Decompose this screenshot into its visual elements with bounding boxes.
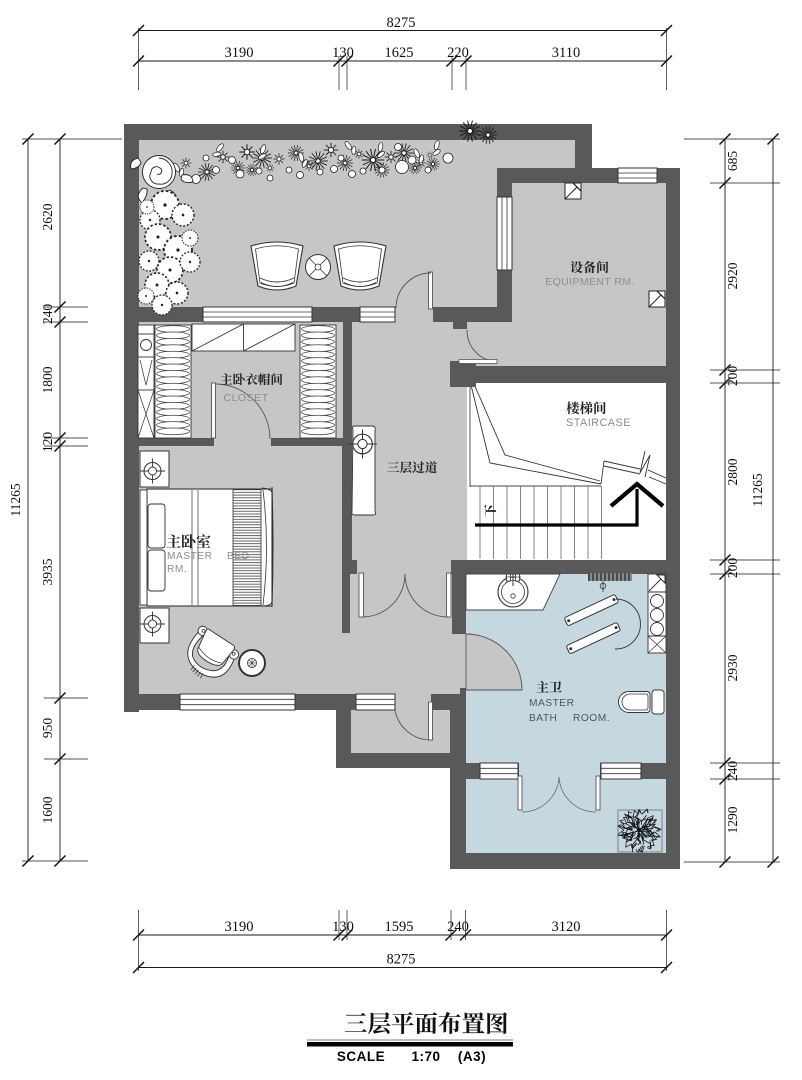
svg-text:240: 240 bbox=[447, 919, 469, 935]
svg-text:3120: 3120 bbox=[552, 919, 581, 935]
svg-text:240: 240 bbox=[40, 304, 55, 325]
svg-text:200: 200 bbox=[725, 366, 740, 387]
svg-text:950: 950 bbox=[40, 718, 55, 739]
svg-text:1800: 1800 bbox=[40, 366, 55, 393]
svg-text:1625: 1625 bbox=[385, 45, 414, 61]
svg-text:STAIRCASE: STAIRCASE bbox=[566, 417, 631, 429]
svg-text:200: 200 bbox=[725, 558, 740, 579]
svg-text:3935: 3935 bbox=[40, 558, 55, 585]
svg-text:240: 240 bbox=[725, 761, 740, 782]
svg-text:RM.: RM. bbox=[167, 564, 187, 575]
svg-text:CLOSET: CLOSET bbox=[223, 392, 268, 404]
svg-text:130: 130 bbox=[332, 919, 354, 935]
svg-text:2620: 2620 bbox=[40, 203, 55, 230]
svg-text:1:70: 1:70 bbox=[411, 1049, 440, 1064]
svg-text:120: 120 bbox=[40, 432, 55, 453]
svg-text:SCALE: SCALE bbox=[337, 1049, 385, 1064]
svg-text:3190: 3190 bbox=[225, 919, 254, 935]
svg-text:2930: 2930 bbox=[725, 654, 740, 681]
svg-text:2920: 2920 bbox=[725, 262, 740, 289]
svg-text:BATH: BATH bbox=[529, 713, 557, 724]
svg-text:1290: 1290 bbox=[725, 806, 740, 833]
svg-text:EQUIPMENT RM.: EQUIPMENT RM. bbox=[545, 276, 635, 288]
svg-text:2800: 2800 bbox=[725, 458, 740, 485]
svg-text:1600: 1600 bbox=[40, 796, 55, 823]
svg-text:MASTER: MASTER bbox=[167, 551, 212, 562]
svg-text:130: 130 bbox=[332, 45, 354, 61]
svg-text:3110: 3110 bbox=[552, 45, 580, 61]
svg-text:ROOM.: ROOM. bbox=[573, 713, 610, 724]
svg-text:3190: 3190 bbox=[225, 45, 254, 61]
svg-text:1595: 1595 bbox=[385, 919, 414, 935]
svg-text:11265: 11265 bbox=[750, 473, 765, 506]
svg-text:8275: 8275 bbox=[387, 15, 416, 31]
svg-text:8275: 8275 bbox=[387, 952, 416, 968]
svg-text:220: 220 bbox=[447, 45, 469, 61]
svg-text:685: 685 bbox=[725, 151, 740, 172]
svg-text:(A3): (A3) bbox=[458, 1049, 486, 1064]
svg-text:MASTER: MASTER bbox=[529, 698, 574, 709]
svg-text:BED: BED bbox=[227, 551, 249, 562]
svg-text:11265: 11265 bbox=[8, 483, 23, 516]
